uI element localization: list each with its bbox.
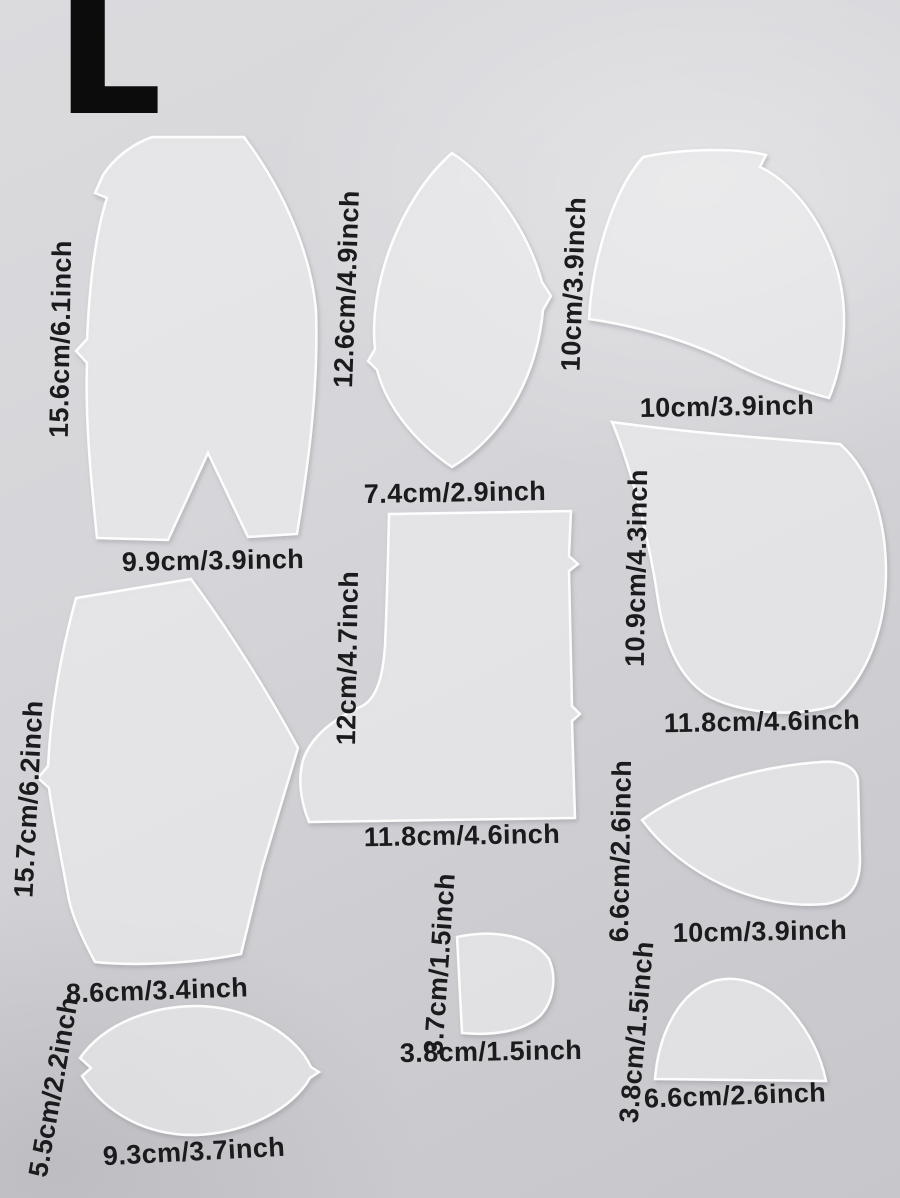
template-piece-side-curve [612, 422, 886, 713]
dimension-label-width: 10cm/3.9inch [673, 915, 848, 949]
dimension-label-height: 12cm/4.7inch [331, 571, 365, 746]
dimension-label-height: 6.6cm/2.6inch [604, 760, 638, 943]
dimension-label-width: 9.9cm/3.9inch [122, 544, 305, 578]
template-piece-heel-tab [457, 934, 553, 1034]
dimension-label-width: 7.4cm/2.9inch [364, 476, 547, 510]
dimension-label-width: 6.6cm/2.6inch [643, 1077, 826, 1114]
template-piece-sole-oval [80, 1006, 319, 1135]
product-photo: L 15.6cm/6.1inch 9.9cm/3.9inch 12.6cm/4.… [0, 0, 900, 1198]
dimension-label-width: 11.8cm/4.6inch [664, 705, 861, 739]
dimension-label-height: 10.9cm/4.3inch [620, 469, 654, 667]
template-piece-back-panel [38, 579, 298, 964]
template-piece-front-upper [76, 137, 316, 540]
template-piece-quarter-wave [589, 150, 844, 398]
dimension-label-width: 11.8cm/4.6inch [364, 819, 561, 853]
template-piece-vamp-leaf [368, 153, 551, 467]
dimension-label-width: 3.8cm/1.5inch [400, 1035, 583, 1069]
template-piece-tongue [642, 762, 860, 905]
dimension-label-width: 10cm/3.9inch [640, 390, 815, 424]
dimension-label-height: 10cm/3.9inch [555, 196, 592, 371]
template-piece-toe-dome [655, 979, 826, 1081]
dimension-label-height: 15.6cm/6.1inch [44, 240, 78, 438]
dimension-label-width: 8.6cm/3.4inch [65, 972, 248, 1009]
